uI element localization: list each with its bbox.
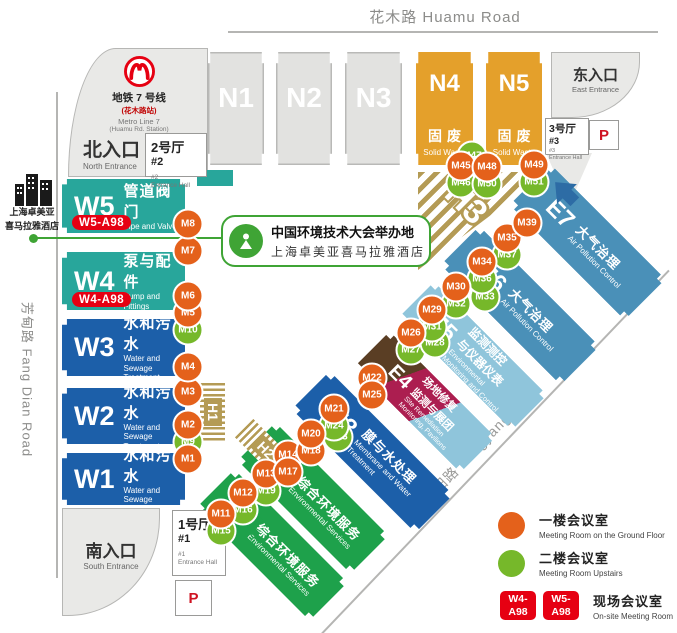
legend-ground-row: 一楼会议室 Meeting Room on the Ground Floor xyxy=(498,510,665,540)
temp-hall-h1-label: H1 xyxy=(204,398,222,426)
hall-id-label: N1 xyxy=(218,84,254,112)
north-entrance-label: 北入口 North Entrance xyxy=(83,135,140,171)
hall-id-label: N2 xyxy=(286,84,322,112)
legend-upstairs-en: Meeting Room Upstairs xyxy=(539,569,623,578)
entrance-hall-3-zh: 3号厅 xyxy=(549,121,585,136)
road-line-huamu xyxy=(228,31,658,33)
hall-name-en-line: Water and Sewage xyxy=(124,486,186,505)
meeting-marker-m6: M6 xyxy=(173,281,204,312)
metro-line-name: 地铁 7 号线 xyxy=(112,90,166,105)
entrance-hall-3-no: #3 xyxy=(549,136,585,146)
meeting-marker-m7: M7 xyxy=(173,236,204,267)
entrance-hall-2-no-small: #2 xyxy=(151,174,158,181)
conference-callout: 中国环境技术大会举办地 上海卓美亚喜马拉雅酒店 xyxy=(221,215,431,267)
meeting-marker-m39: M39 xyxy=(512,208,543,239)
metro-station-name: (花木路站) xyxy=(122,105,157,116)
north-entrance-zh: 北入口 xyxy=(83,135,140,162)
metro-station-name-en: (Huamu Rd. Station) xyxy=(109,126,168,133)
meeting-marker-m8: M8 xyxy=(173,209,204,240)
meeting-marker-m49: M49 xyxy=(519,150,550,181)
legend-upstairs-dot-icon xyxy=(498,550,525,577)
east-entrance-zh: 东入口 xyxy=(573,64,618,85)
legend-upstairs-row: 二楼会议室 Meeting Room Upstairs xyxy=(498,548,623,578)
legend-upstairs-zh: 二楼会议室 xyxy=(539,548,623,567)
hall-name-zh-line: 固废 xyxy=(423,126,466,146)
entrance-hall-3-en-text: Entrance Hall xyxy=(549,155,582,161)
meeting-marker-m1: M1 xyxy=(173,444,204,475)
hall-id-label: E4 xyxy=(384,361,415,392)
entrance-hall-1-en-text: Entrance Hall xyxy=(178,559,217,566)
entrance-hall-2-no: #2 xyxy=(151,156,201,168)
legend-onsite-badge-w5: W5-A98 xyxy=(543,591,579,620)
metro-logo-icon xyxy=(123,55,156,88)
east-entrance-en: East Entrance xyxy=(572,85,619,94)
meeting-marker-m34: M34 xyxy=(467,247,498,278)
entrance-hall-2-box: 2号厅 #2 #2 Entrance Hall xyxy=(145,133,207,177)
hall-text: 大气治理Air Pollution Control xyxy=(565,220,635,290)
parking-badge-east: P xyxy=(589,120,619,150)
hall-name-zh-line: 固废 xyxy=(493,126,536,146)
entrance-hall-1-en: #1 Entrance Hall xyxy=(178,551,220,567)
meeting-marker-m4: M4 xyxy=(173,352,204,383)
legend-onsite-en: On-site Meeting Room xyxy=(593,612,673,621)
east-entrance-area: 东入口 East Entrance xyxy=(551,52,640,118)
hall-w1: W1水和污水Water and SewageTreatment xyxy=(62,453,185,505)
hall-id-label: N4 xyxy=(429,72,460,96)
legend-ground-en: Meeting Room on the Ground Floor xyxy=(539,531,665,540)
south-entrance-en: South Entrance xyxy=(83,562,138,571)
onsite-meeting-badge: W4-A98 xyxy=(72,292,131,307)
entrance-hall-2-en: #2 Entrance Hall xyxy=(151,174,201,190)
entrance-hall-2-en-text: Entrance Hall xyxy=(151,182,190,189)
conference-callout-subtitle: 上海卓美亚喜马拉雅酒店 xyxy=(271,243,425,260)
hotel-name-line2: 喜马拉雅酒店 xyxy=(5,221,59,231)
hall-w4: W4泵与配件Pump and FittingsW4-A98 xyxy=(62,252,185,310)
hall-id-label: W3 xyxy=(74,334,115,361)
meeting-marker-m20: M20 xyxy=(296,419,327,450)
road-line-fangdian xyxy=(56,92,58,578)
hall-w2: W2水和污水Water and SewageTreatment xyxy=(62,388,185,444)
onsite-meeting-badge: W5-A98 xyxy=(72,215,131,230)
legend-ground-zh: 一楼会议室 xyxy=(539,510,665,529)
hall-id-label: N3 xyxy=(356,84,392,112)
meeting-marker-m48: M48 xyxy=(472,152,503,183)
temp-hall-h1: H1 xyxy=(200,383,225,441)
hall-id-label: N5 xyxy=(499,72,530,96)
hall-n3: N3 xyxy=(345,52,402,165)
meeting-marker-m2: M2 xyxy=(173,410,204,441)
legend-onsite-badge-w4: W4-A98 xyxy=(500,591,536,620)
hotel-name: 上海卓美亚 喜马拉雅酒店 xyxy=(2,206,62,233)
entrance-hall-3-no-small: #3 xyxy=(549,148,555,154)
meeting-marker-m29: M29 xyxy=(417,295,448,326)
conference-callout-title: 中国环境技术大会举办地 xyxy=(271,222,425,241)
conference-callout-icon xyxy=(229,224,263,258)
south-entrance-area: 南入口 South Entrance xyxy=(62,508,160,616)
exhibition-floorplan-map: 花木路 Huamu Road 芳甸路 Fang Dian Road 龙阳路 Lo… xyxy=(0,0,677,633)
hall-n2: N2 xyxy=(276,52,332,165)
hall-w3: W3水和污水Water and SewageTreatment xyxy=(62,319,185,376)
legend-ground-dot-icon xyxy=(498,512,525,539)
hall-id-label: W2 xyxy=(74,403,115,430)
entrance-hall-1-no-small: #1 xyxy=(178,551,185,558)
hall-id-label: W4 xyxy=(74,268,115,295)
metro-line-name-en: Metro Line 7 xyxy=(118,117,160,126)
hall-name-zh: 固废 xyxy=(423,126,466,146)
metro-station-info: 地铁 7 号线 (花木路站) Metro Line 7 (Huamu Rd. S… xyxy=(69,55,209,133)
legend-onsite-row: W4-A98 W5-A98 现场会议室 On-site Meeting Room xyxy=(500,591,673,621)
hall-name-zh: 固废 xyxy=(493,126,536,146)
south-entrance-zh: 南入口 xyxy=(86,537,137,562)
hotel-name-line1: 上海卓美亚 xyxy=(9,207,54,217)
meeting-marker-m25: M25 xyxy=(357,380,388,411)
entrance-hall-3-en: #3 Entrance Hall xyxy=(549,148,585,161)
entrance-hall-3-box: 3号厅 #3 #3 Entrance Hall xyxy=(545,118,589,155)
hall-text: 膜与水处理Membrane and WaterTreatment xyxy=(344,424,426,506)
meeting-marker-m21: M21 xyxy=(319,394,350,425)
road-label-huamu: 花木路 Huamu Road xyxy=(230,6,660,27)
road-label-fangdian: 芳甸路 Fang Dian Road xyxy=(19,295,38,465)
north-entrance-en: North Entrance xyxy=(83,162,140,171)
hall-n1: N1 xyxy=(208,52,264,165)
hall-id-label: W1 xyxy=(74,466,115,493)
hall-text: 大气治理Air Pollution Control xyxy=(498,283,568,353)
entrance-hall-2-zh: 2号厅 xyxy=(151,137,201,156)
parking-badge-south: P xyxy=(175,580,212,616)
legend-onsite-zh: 现场会议室 xyxy=(593,591,673,610)
meeting-marker-m30: M30 xyxy=(441,272,472,303)
hotel-building-icon xyxy=(14,170,54,206)
hall-n5: N5固废Solid Waste xyxy=(486,52,542,165)
